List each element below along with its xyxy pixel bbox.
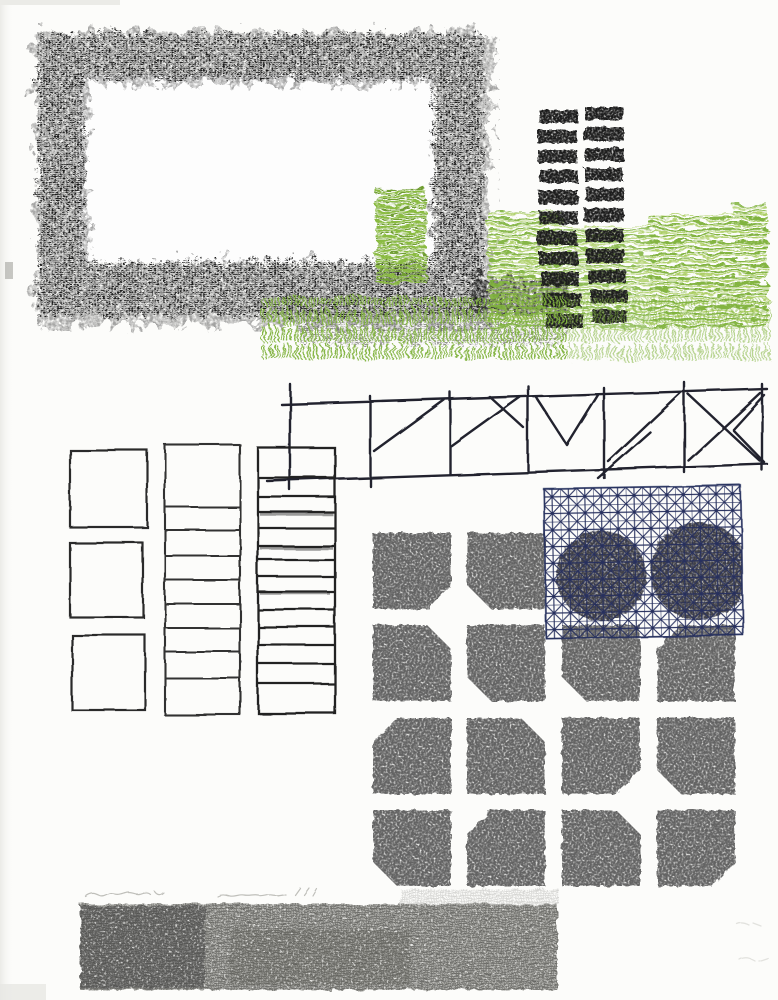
grass-band <box>262 297 770 361</box>
grass-right <box>560 299 770 361</box>
woven-strip <box>80 889 560 990</box>
black-tower-left <box>537 110 583 328</box>
tower-bar <box>588 270 626 283</box>
cityscape-spur <box>733 204 768 238</box>
tower-bar <box>585 107 623 120</box>
tower-bar <box>584 208 624 222</box>
black-tower-right <box>584 107 627 323</box>
woven-strip-dark-mid <box>230 930 410 985</box>
lattice-pattern <box>544 485 744 638</box>
paper-corner-shade <box>0 984 46 1000</box>
paper-top-edge-shade <box>0 0 120 5</box>
lattice-square-group <box>544 485 750 639</box>
tower-bar <box>585 229 624 242</box>
green-tower <box>376 188 426 283</box>
paper-edge-speck <box>5 262 13 279</box>
grass-left <box>262 297 566 359</box>
tower-bar <box>538 190 578 204</box>
tower-bar <box>584 168 623 181</box>
tower-bar <box>537 130 577 143</box>
artwork-canvas <box>0 0 778 1000</box>
tower-bar <box>541 272 579 286</box>
tower-bar <box>540 170 578 183</box>
tower-bar <box>585 148 624 161</box>
green-tower-body <box>376 188 426 283</box>
paper-left-edge-shade <box>0 0 14 1000</box>
print-artwork <box>0 0 778 1000</box>
tower-bar <box>537 231 577 245</box>
tower-bar <box>539 110 578 123</box>
tower-bar <box>584 127 624 141</box>
tower-bar <box>586 249 624 263</box>
tower-bar <box>539 211 578 224</box>
tower-bar <box>538 150 577 163</box>
woven-strip-extension <box>400 889 560 905</box>
tower-bar <box>586 188 624 201</box>
tower-bar <box>539 252 578 265</box>
woven-strip-dark-left <box>80 906 205 988</box>
